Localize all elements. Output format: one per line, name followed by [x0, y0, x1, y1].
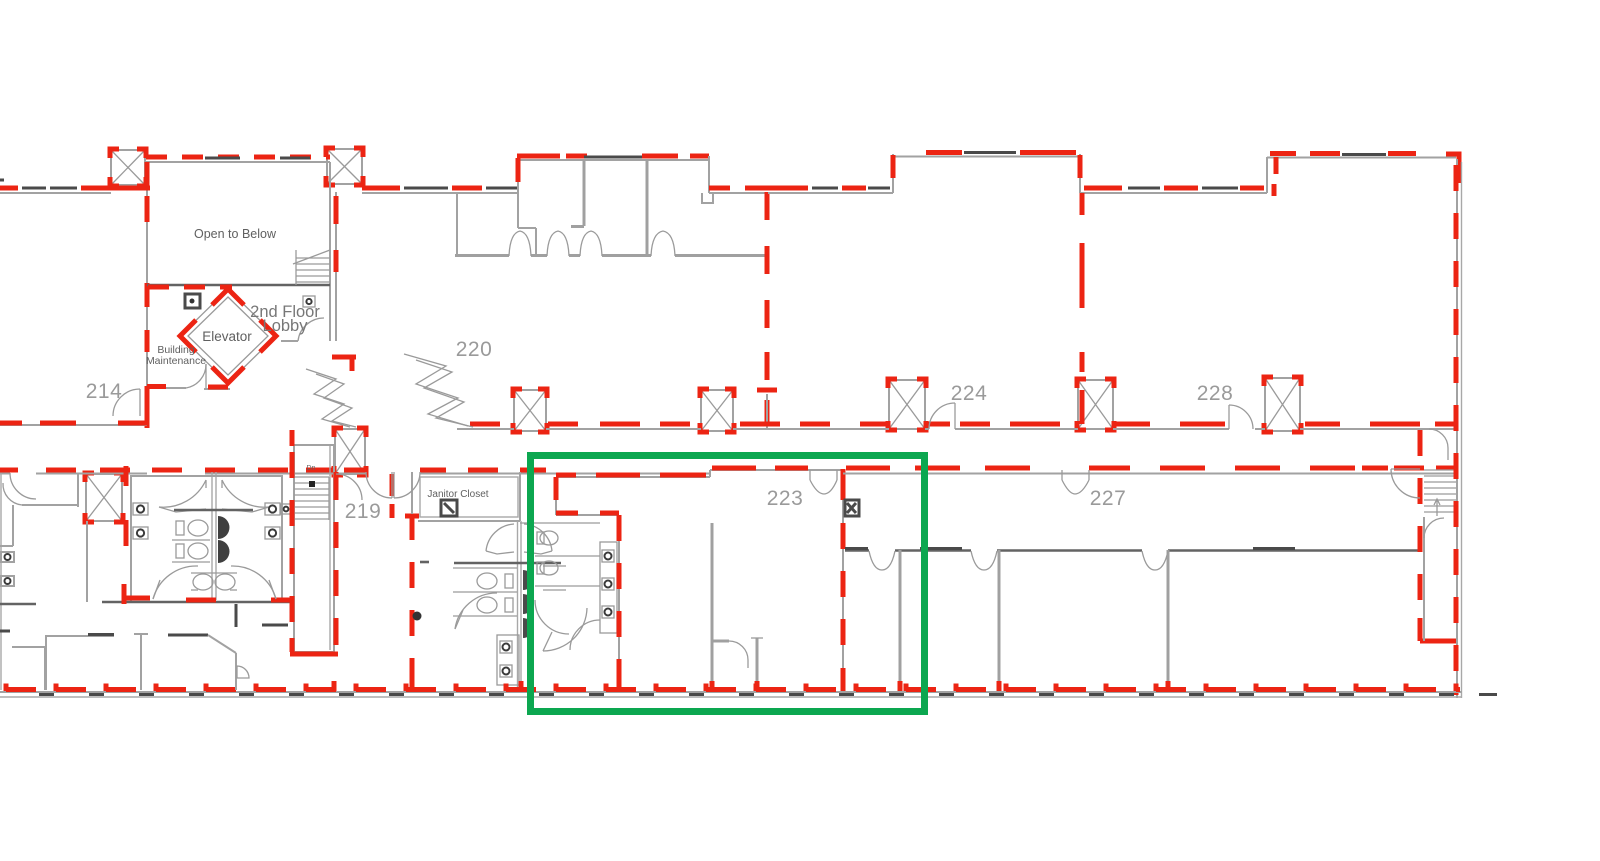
svg-text:223: 223: [767, 487, 804, 510]
svg-text:Janitor Closet: Janitor Closet: [427, 489, 488, 500]
svg-text:Lobby: Lobby: [263, 317, 309, 335]
svg-text:Dn: Dn: [307, 465, 316, 472]
svg-text:219: 219: [345, 500, 382, 523]
svg-text:Elevator: Elevator: [202, 329, 252, 344]
svg-text:227: 227: [1090, 487, 1127, 510]
svg-text:224: 224: [951, 382, 988, 405]
svg-text:Open to Below: Open to Below: [194, 227, 277, 241]
svg-text:220: 220: [456, 338, 493, 361]
svg-text:214: 214: [86, 380, 123, 403]
svg-text:228: 228: [1197, 382, 1234, 405]
svg-text:Maintenance: Maintenance: [146, 355, 206, 367]
